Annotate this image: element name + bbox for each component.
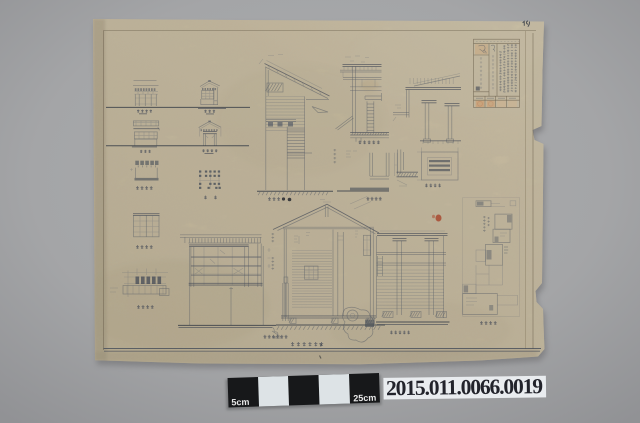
svg-text:25cm: 25cm: [353, 393, 376, 404]
svg-text:2015.011.0066.0019: 2015.011.0066.0019: [386, 374, 543, 400]
svg-text:5cm: 5cm: [231, 397, 249, 408]
